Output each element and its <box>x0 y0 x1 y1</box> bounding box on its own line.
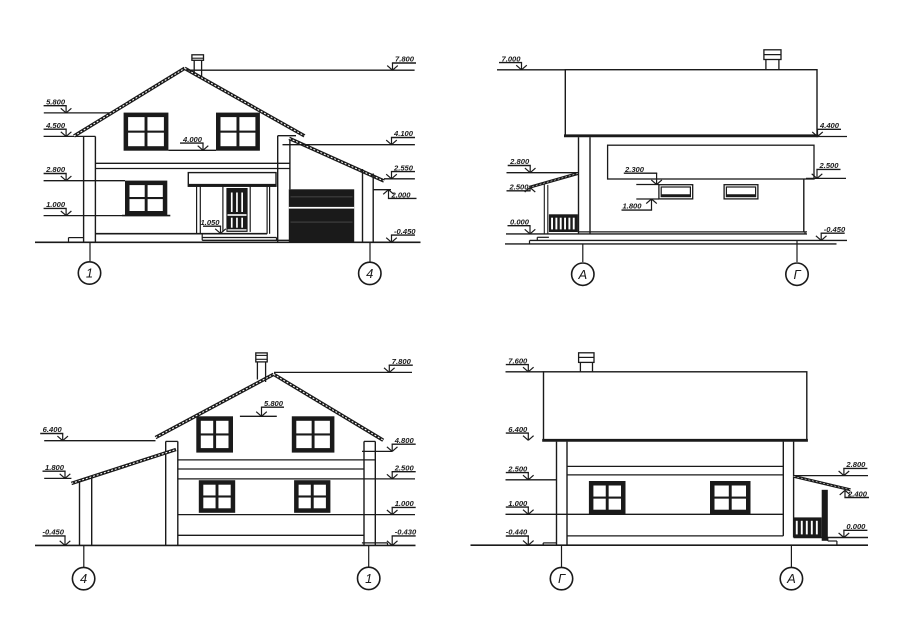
svg-text:1.050: 1.050 <box>200 218 220 227</box>
svg-text:1.800: 1.800 <box>623 202 643 211</box>
svg-text:4: 4 <box>80 571 87 586</box>
svg-text:2.400: 2.400 <box>847 490 868 499</box>
svg-text:0.000: 0.000 <box>510 217 530 226</box>
svg-text:4.400: 4.400 <box>819 121 840 130</box>
svg-text:-0.450: -0.450 <box>42 528 64 537</box>
svg-text:А: А <box>786 571 796 586</box>
svg-text:2.800: 2.800 <box>845 460 866 469</box>
svg-text:2.500: 2.500 <box>819 161 840 170</box>
svg-text:4.100: 4.100 <box>393 129 414 138</box>
svg-text:-0.450: -0.450 <box>824 225 846 234</box>
svg-text:7.800: 7.800 <box>395 55 415 64</box>
svg-text:2.500: 2.500 <box>508 183 529 192</box>
svg-text:4.800: 4.800 <box>394 436 415 445</box>
svg-text:-0.430: -0.430 <box>395 528 417 537</box>
svg-text:5.800: 5.800 <box>46 97 66 106</box>
svg-text:1: 1 <box>365 571 372 586</box>
svg-text:4: 4 <box>366 266 373 281</box>
svg-text:1.000: 1.000 <box>395 499 415 508</box>
svg-text:Г: Г <box>558 571 566 586</box>
svg-text:-0.440: -0.440 <box>506 528 528 537</box>
svg-text:7.800: 7.800 <box>392 357 412 366</box>
svg-text:2.550: 2.550 <box>393 163 414 172</box>
svg-text:2.500: 2.500 <box>394 463 415 472</box>
svg-text:А: А <box>577 267 587 282</box>
svg-text:7.000: 7.000 <box>501 54 521 63</box>
svg-text:Г: Г <box>793 267 801 282</box>
svg-text:2.800: 2.800 <box>509 157 530 166</box>
svg-text:2.500: 2.500 <box>507 464 528 473</box>
svg-text:2.300: 2.300 <box>624 165 645 174</box>
svg-text:2.800: 2.800 <box>45 165 66 174</box>
svg-text:1.000: 1.000 <box>46 200 66 209</box>
svg-text:-0.450: -0.450 <box>394 227 416 236</box>
svg-text:1.000: 1.000 <box>508 499 528 508</box>
svg-text:5.800: 5.800 <box>264 399 284 408</box>
svg-text:4.500: 4.500 <box>45 121 66 130</box>
svg-text:2.000: 2.000 <box>391 191 412 200</box>
svg-text:7.600: 7.600 <box>508 356 528 365</box>
svg-text:6.400: 6.400 <box>508 425 528 434</box>
svg-text:4.000: 4.000 <box>182 135 203 144</box>
svg-text:6.400: 6.400 <box>43 425 63 434</box>
svg-text:0.000: 0.000 <box>846 522 866 531</box>
svg-text:1.800: 1.800 <box>45 463 65 472</box>
svg-text:1: 1 <box>86 266 93 281</box>
